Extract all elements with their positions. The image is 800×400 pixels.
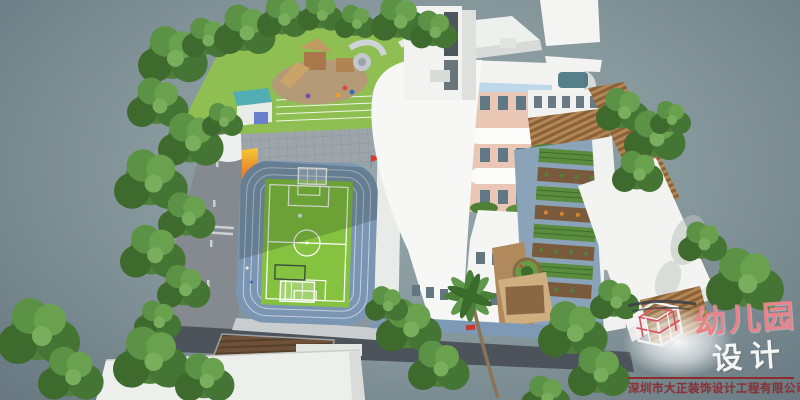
sand-pit: [498, 272, 554, 326]
tree: [335, 5, 376, 38]
render-canvas: 幼儿园 设计 深圳市大正装饰设计工程有限公司: [0, 0, 800, 400]
brand-divider: [628, 377, 794, 380]
watermark: 幼儿园 设计 深圳市大正装饰设计工程有限公司: [626, 296, 800, 400]
brand-subtitle: 设计: [711, 329, 790, 378]
tree: [650, 101, 691, 134]
running-track: [235, 160, 379, 327]
company-name: 深圳市大正装饰设计工程有限公司: [628, 380, 800, 396]
tree: [521, 376, 570, 400]
